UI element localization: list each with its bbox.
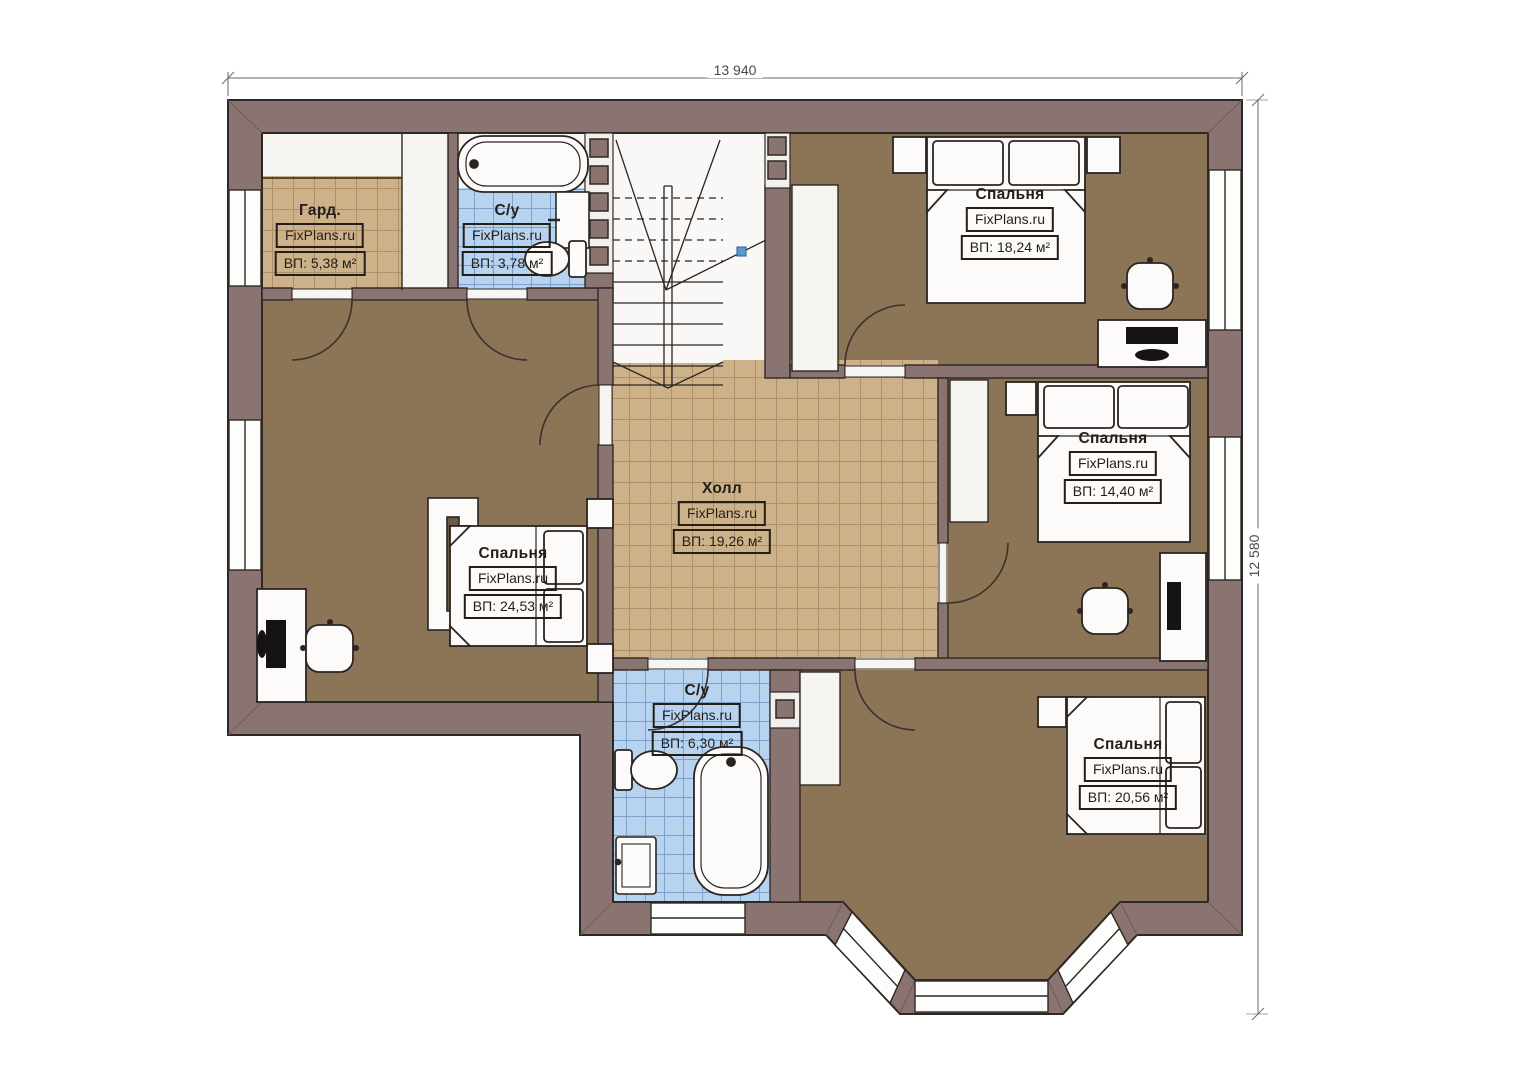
- window-left-mid: [229, 420, 261, 570]
- speaker: [257, 630, 267, 658]
- watermark: FixPlans.ru: [276, 223, 364, 248]
- window-right-top: [1209, 170, 1241, 330]
- room-area: ВП: 19,26 м²: [673, 529, 771, 554]
- closet-bedroom-top-right: [792, 185, 838, 371]
- desk-left-bedroom: [257, 589, 306, 702]
- watermark: FixPlans.ru: [678, 501, 766, 526]
- window-right-mid: [1209, 437, 1241, 580]
- floor-plan-canvas: 13 940 12 580 Гард. FixPlans.ru ВП: 5,38…: [0, 0, 1528, 1080]
- nightstand: [1038, 697, 1066, 727]
- room-name: Гард.: [275, 202, 366, 220]
- room-area: ВП: 5,38 м²: [275, 251, 366, 276]
- wardrobe-bedroom-mid-right: [950, 380, 988, 522]
- room-area: ВП: 3,78 м²: [462, 251, 553, 276]
- pillow: [933, 141, 1003, 185]
- watermark: FixPlans.ru: [1084, 757, 1172, 782]
- room-name: Холл: [673, 480, 771, 498]
- hall-floor: [613, 360, 938, 658]
- desk-mid-right: [1160, 553, 1206, 661]
- nightstand: [587, 499, 613, 528]
- pillow: [1118, 386, 1188, 428]
- faucet: [470, 160, 478, 168]
- staircase: [613, 133, 770, 388]
- monitor: [1126, 327, 1178, 344]
- pillow: [1009, 141, 1079, 185]
- room-name: Спальня: [464, 545, 562, 563]
- room-label-hall: Холл FixPlans.ru ВП: 19,26 м²: [673, 480, 771, 554]
- dimension-width-label: 13 940: [708, 62, 763, 78]
- room-area: ВП: 24,53 м²: [464, 594, 562, 619]
- room-area: ВП: 14,40 м²: [1064, 479, 1162, 504]
- window-left-top: [229, 190, 261, 286]
- monitor: [266, 620, 286, 668]
- room-label-bathroom-bottom: С/у FixPlans.ru ВП: 6,30 м²: [652, 682, 743, 756]
- toilet-tank: [615, 750, 632, 790]
- watermark: FixPlans.ru: [653, 703, 741, 728]
- keyboard: [1135, 349, 1169, 361]
- toilet-bottom: [615, 750, 677, 790]
- room-label-wardrobe: Гард. FixPlans.ru ВП: 5,38 м²: [275, 202, 366, 276]
- watermark: FixPlans.ru: [966, 207, 1054, 232]
- room-area: ВП: 18,24 м²: [961, 235, 1059, 260]
- closet-bedroom-bottom-right: [800, 672, 840, 785]
- toilet-tank: [569, 241, 586, 277]
- toilet-bowl: [631, 751, 677, 789]
- room-name: Спальня: [961, 186, 1059, 204]
- desk-top-right: [1098, 320, 1206, 367]
- bathtub-bottom: [694, 747, 768, 895]
- stair-direction-marker: [737, 247, 746, 256]
- room-label-bedroom-left: Спальня FixPlans.ru ВП: 24,53 м²: [464, 545, 562, 619]
- watermark: FixPlans.ru: [463, 223, 551, 248]
- bathtub-top: [458, 136, 588, 192]
- room-label-bedroom-top-right: Спальня FixPlans.ru ВП: 18,24 м²: [961, 186, 1059, 260]
- nightstand: [1087, 137, 1120, 173]
- window-bay-bottom: [915, 981, 1048, 1012]
- room-name: Спальня: [1079, 736, 1177, 754]
- room-label-bathroom-top: С/у FixPlans.ru ВП: 3,78 м²: [462, 202, 553, 276]
- faucet: [727, 758, 735, 766]
- nightstand: [1006, 382, 1036, 415]
- room-name: Спальня: [1064, 430, 1162, 448]
- room-area: ВП: 20,56 м²: [1079, 785, 1177, 810]
- room-label-bedroom-bottom-right: Спальня FixPlans.ru ВП: 20,56 м²: [1079, 736, 1177, 810]
- window-bathroom-bottom: [651, 903, 745, 934]
- nightstand: [587, 644, 613, 673]
- washing-machine: [616, 837, 657, 894]
- room-name: С/у: [462, 202, 553, 220]
- watermark: FixPlans.ru: [469, 566, 557, 591]
- room-name: С/у: [652, 682, 743, 700]
- dimension-height-label: 12 580: [1246, 529, 1262, 584]
- watermark: FixPlans.ru: [1069, 451, 1157, 476]
- pillow: [1044, 386, 1114, 428]
- monitor: [1167, 582, 1181, 630]
- nightstand: [893, 137, 926, 173]
- room-label-bedroom-mid-right: Спальня СпальняFixPlans.ru ВП: 14,40 м²: [1064, 430, 1162, 504]
- room-area: ВП: 6,30 м²: [652, 731, 743, 756]
